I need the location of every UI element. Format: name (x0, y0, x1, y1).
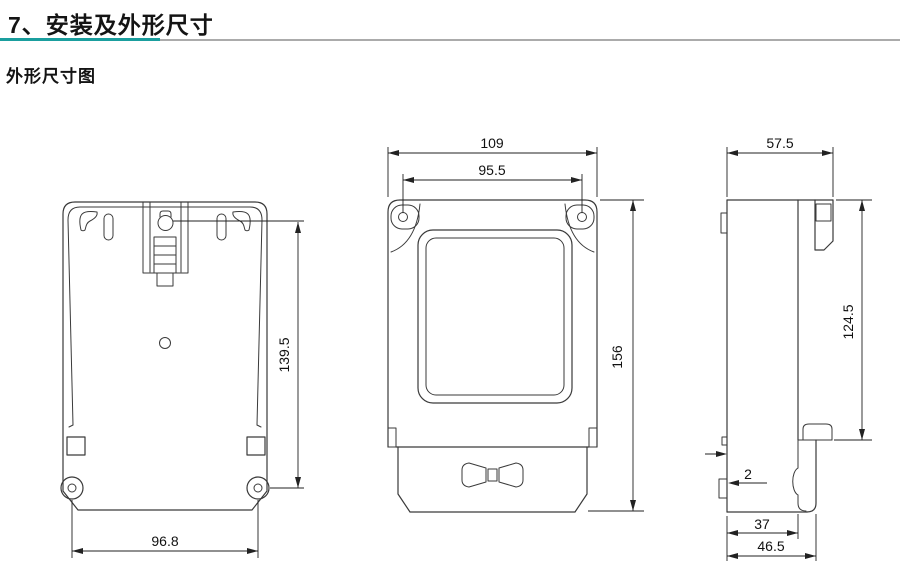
cover-seal-bowtie (462, 463, 523, 487)
slot-left (104, 214, 113, 240)
side-cover-back-edge (798, 440, 806, 511)
display-window-inner (426, 238, 564, 395)
screw-hole-right (578, 213, 587, 222)
corner-leaf-left (80, 211, 97, 230)
dim-front-screw-span: 95.5 (478, 162, 505, 178)
side-tab-lower (719, 479, 727, 498)
back-inner-jogs (69, 425, 261, 427)
screw-pad-right (566, 205, 594, 229)
side-tab-top (721, 213, 727, 233)
screw-hole-left (399, 213, 408, 222)
slot-right (217, 214, 226, 240)
back-outline (63, 202, 267, 510)
terminal-cover (398, 447, 587, 512)
corner-gusset-left (391, 204, 420, 252)
display-window-outer (418, 230, 572, 403)
back-center-hole (160, 338, 171, 349)
mounting-hole-right (247, 477, 269, 499)
corner-gusset-right (565, 204, 594, 252)
dimension-lines (72, 147, 872, 561)
hanging-hook-detail (816, 204, 831, 221)
back-inner-outline (68, 207, 262, 425)
front-side-tab-right (589, 428, 597, 447)
dim-side-base-depth: 37 (754, 516, 770, 532)
dim-front-overall-width: 109 (480, 135, 504, 151)
side-view (719, 200, 833, 512)
side-lower-back-edge (807, 440, 816, 512)
hanging-hook (815, 200, 833, 250)
dimension-labels: 96.8 139.5 109 95.5 156 57.5 124.5 2 37 … (151, 135, 856, 554)
back-cutout-left (67, 437, 85, 455)
dim-back-keyhole-to-holes: 139.5 (276, 337, 292, 372)
dimension-drawing: 96.8 139.5 109 95.5 156 57.5 124.5 2 37 … (0, 0, 900, 562)
keyhole (158, 216, 173, 231)
dim-side-tab-thickness: 2 (744, 466, 752, 482)
front-outline (388, 200, 597, 447)
back-cutout-right (247, 437, 265, 455)
back-view (61, 202, 269, 510)
mounting-hole-left (61, 477, 83, 499)
hanger-ladder-rungs (154, 246, 176, 264)
dim-side-depth: 57.5 (766, 135, 793, 151)
dimension-arrowheads (72, 150, 865, 559)
front-side-tab-left (388, 428, 396, 447)
dim-side-overall-depth: 46.5 (757, 538, 784, 554)
dim-back-hole-span: 96.8 (151, 533, 178, 549)
dim-front-overall-height: 156 (609, 345, 625, 369)
side-tab-small (722, 437, 727, 445)
hanger-foot (157, 273, 173, 286)
dim-side-body-height: 124.5 (840, 304, 856, 339)
screw-pad-left (391, 205, 419, 229)
side-seal-notch (793, 468, 798, 495)
manual-page: 7、安装及外形尺寸 外形尺寸图 (0, 0, 900, 562)
side-step-bump (803, 424, 832, 440)
front-view (388, 200, 597, 512)
